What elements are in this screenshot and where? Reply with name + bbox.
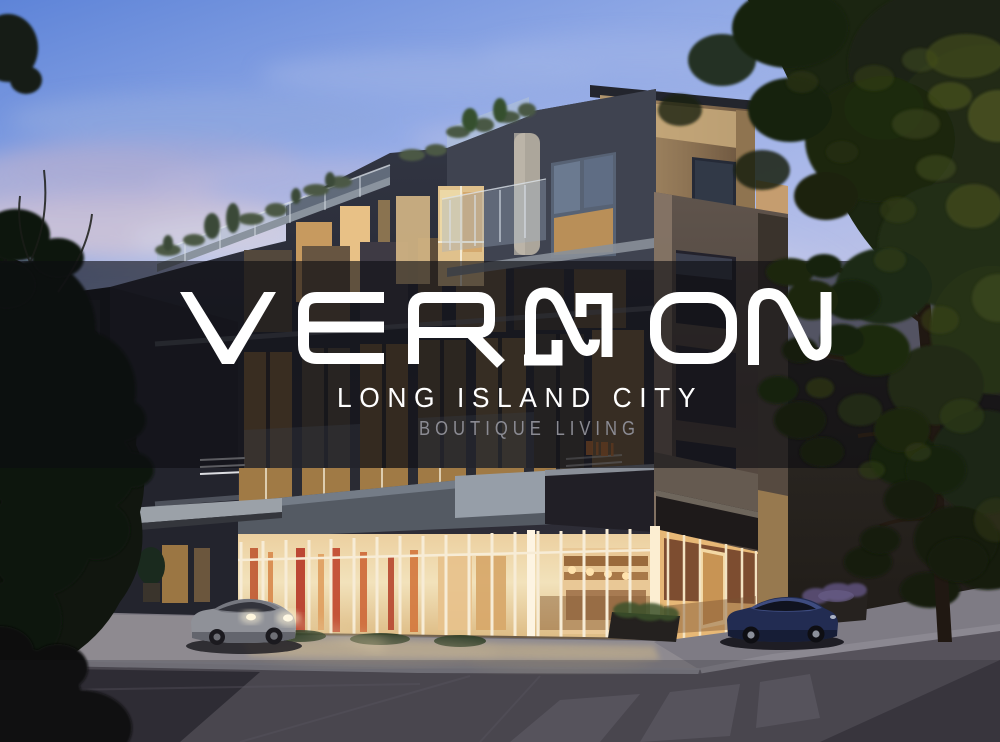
- svg-text:LONG ISLAND CITY: LONG ISLAND CITY: [337, 382, 703, 413]
- svg-text:BOUTIQUE LIVING: BOUTIQUE LIVING: [419, 418, 640, 440]
